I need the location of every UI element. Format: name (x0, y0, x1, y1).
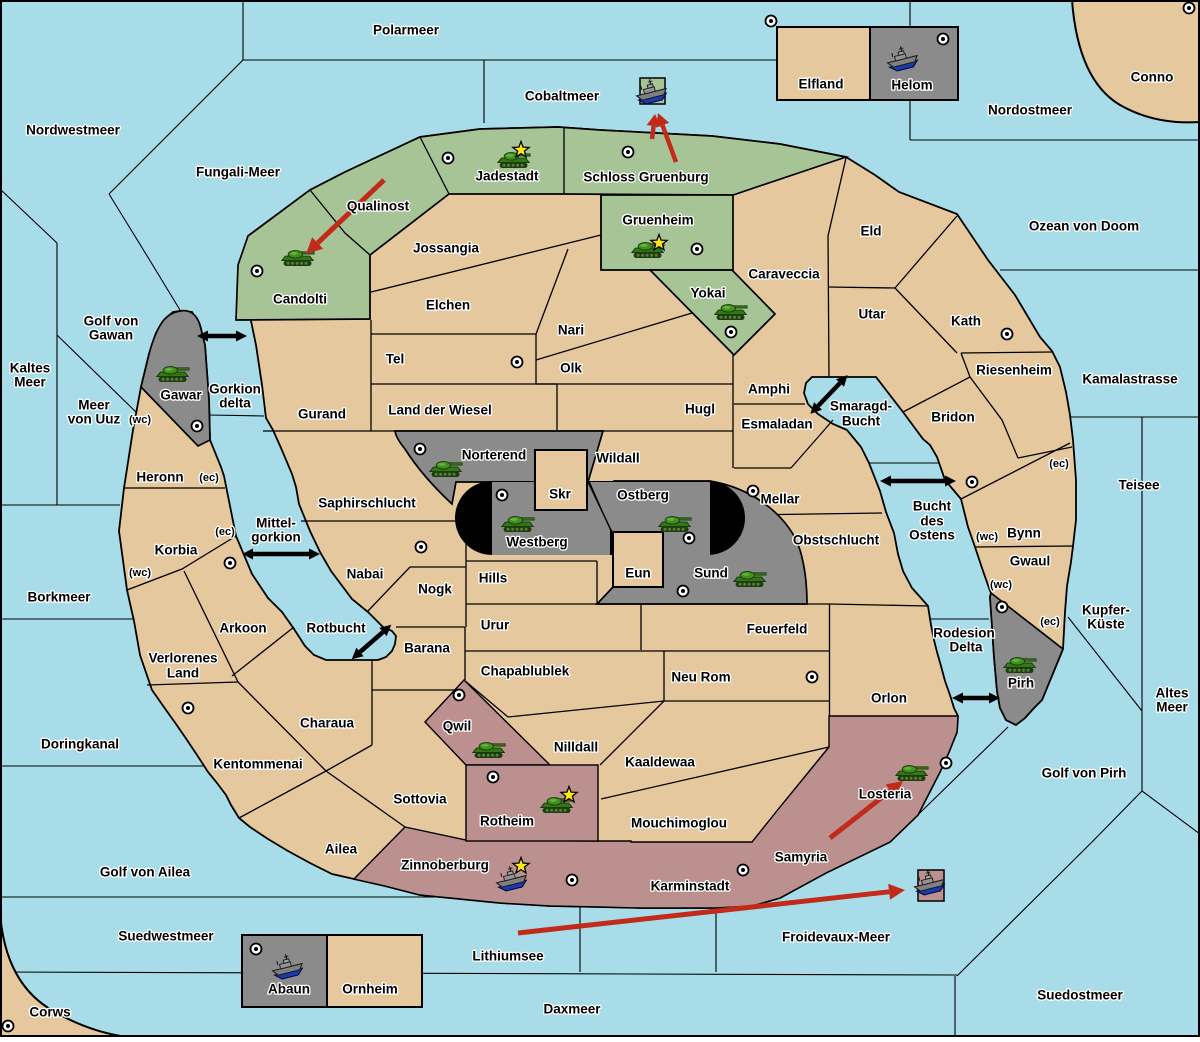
svg-text:Jossangia: Jossangia (413, 241, 480, 256)
svg-text:Saphirschlucht: Saphirschlucht (318, 496, 416, 511)
svg-text:Froidevaux-Meer: Froidevaux-Meer (782, 930, 891, 945)
svg-text:(ec): (ec) (215, 526, 235, 538)
svg-text:Teisee: Teisee (1118, 478, 1160, 493)
svg-text:(ec): (ec) (1049, 458, 1069, 470)
svg-text:Land: Land (167, 666, 199, 681)
svg-text:Gawan: Gawan (89, 328, 133, 343)
svg-text:Elchen: Elchen (426, 298, 470, 313)
svg-text:gorkion: gorkion (251, 530, 301, 545)
svg-text:Amphi: Amphi (748, 382, 790, 397)
svg-text:Qualinost: Qualinost (347, 199, 410, 214)
svg-text:Ozean von Doom: Ozean von Doom (1029, 219, 1139, 234)
svg-text:Pirh: Pirh (1008, 676, 1034, 691)
svg-text:Esmaladan: Esmaladan (741, 417, 812, 432)
svg-text:Abaun: Abaun (268, 982, 310, 997)
svg-text:Suedostmeer: Suedostmeer (1037, 988, 1123, 1003)
svg-text:Obstschlucht: Obstschlucht (793, 533, 880, 548)
svg-text:Charaua: Charaua (300, 716, 355, 731)
svg-text:Kath: Kath (951, 314, 981, 329)
svg-text:Kaltes: Kaltes (10, 361, 51, 376)
svg-text:Riesenheim: Riesenheim (976, 363, 1052, 378)
svg-text:Gawar: Gawar (160, 388, 202, 403)
svg-text:Orlon: Orlon (871, 691, 907, 706)
svg-text:Nilldall: Nilldall (554, 740, 598, 755)
svg-text:Lithiumsee: Lithiumsee (472, 949, 544, 964)
svg-text:Chapablublek: Chapablublek (481, 664, 570, 679)
svg-text:Borkmeer: Borkmeer (27, 590, 91, 605)
svg-text:Land der Wiesel: Land der Wiesel (388, 403, 491, 418)
svg-text:Samyria: Samyria (775, 850, 828, 865)
svg-text:Elfland: Elfland (798, 77, 843, 92)
svg-text:Yokai: Yokai (690, 286, 725, 301)
svg-text:Meer: Meer (1156, 700, 1188, 715)
svg-text:Hugl: Hugl (685, 402, 715, 417)
svg-text:von Uuz: von Uuz (68, 412, 121, 427)
svg-text:Kentommenai: Kentommenai (213, 757, 302, 772)
svg-text:(wc): (wc) (990, 579, 1012, 591)
svg-text:Conno: Conno (1131, 70, 1174, 85)
svg-text:Mouchimoglou: Mouchimoglou (631, 816, 727, 831)
svg-text:Rodesion: Rodesion (933, 626, 995, 641)
svg-text:Bucht: Bucht (913, 499, 952, 514)
svg-text:Rotheim: Rotheim (480, 814, 534, 829)
svg-text:Gurand: Gurand (298, 407, 346, 422)
svg-text:(wc): (wc) (129, 567, 151, 579)
svg-text:Karminstadt: Karminstadt (651, 879, 730, 894)
svg-text:Corws: Corws (29, 1005, 70, 1020)
svg-text:Barana: Barana (404, 641, 450, 656)
svg-text:Cobaltmeer: Cobaltmeer (525, 89, 600, 104)
svg-text:Smaragd-: Smaragd- (830, 399, 892, 414)
svg-text:des: des (920, 514, 943, 529)
svg-text:Eld: Eld (860, 224, 881, 239)
svg-text:Golf von Ailea: Golf von Ailea (100, 865, 191, 880)
svg-text:(wc): (wc) (976, 531, 998, 543)
svg-text:Caraveccia: Caraveccia (748, 267, 820, 282)
svg-text:Mittel-: Mittel- (256, 516, 296, 531)
svg-text:(ec): (ec) (199, 472, 219, 484)
svg-text:Olk: Olk (560, 361, 582, 376)
svg-text:Polarmeer: Polarmeer (373, 23, 440, 38)
svg-text:Norterend: Norterend (462, 448, 527, 463)
svg-text:Neu Rom: Neu Rom (671, 670, 730, 685)
svg-text:Doringkanal: Doringkanal (41, 737, 119, 752)
svg-text:Utar: Utar (858, 307, 886, 322)
svg-text:Fungali-Meer: Fungali-Meer (196, 165, 281, 180)
svg-text:Zinnoberburg: Zinnoberburg (401, 858, 489, 873)
svg-text:Arkoon: Arkoon (219, 621, 266, 636)
svg-text:Bridon: Bridon (931, 410, 975, 425)
svg-text:Nogk: Nogk (418, 582, 452, 597)
svg-text:Westberg: Westberg (506, 535, 567, 550)
svg-text:Suedwestmeer: Suedwestmeer (118, 929, 214, 944)
svg-text:Korbia: Korbia (155, 543, 198, 558)
svg-text:Kaaldewaa: Kaaldewaa (625, 755, 695, 770)
svg-text:Nari: Nari (558, 323, 584, 338)
svg-text:Gwaul: Gwaul (1010, 554, 1051, 569)
svg-text:Qwil: Qwil (443, 719, 472, 734)
svg-text:Golf von Pirh: Golf von Pirh (1042, 766, 1127, 781)
svg-text:(wc): (wc) (129, 414, 151, 426)
svg-text:Candolti: Candolti (273, 292, 327, 307)
svg-text:Meer: Meer (78, 398, 110, 413)
svg-text:Daxmeer: Daxmeer (543, 1002, 601, 1017)
svg-text:Bynn: Bynn (1007, 526, 1041, 541)
svg-text:Bucht: Bucht (842, 414, 881, 429)
svg-text:Gruenheim: Gruenheim (622, 213, 693, 228)
svg-text:Golf von: Golf von (84, 314, 139, 329)
svg-text:Eun: Eun (625, 566, 651, 581)
svg-text:Ostens: Ostens (909, 528, 955, 543)
svg-text:Gorkion: Gorkion (209, 382, 261, 397)
svg-text:Nordostmeer: Nordostmeer (988, 103, 1073, 118)
svg-text:Kupfer-: Kupfer- (1082, 603, 1130, 618)
svg-text:Heronn: Heronn (136, 470, 183, 485)
svg-text:Ailea: Ailea (325, 842, 358, 857)
svg-text:Sund: Sund (694, 566, 728, 581)
svg-text:Küste: Küste (1087, 617, 1125, 632)
svg-text:(ec): (ec) (1040, 616, 1060, 628)
svg-text:Jadestadt: Jadestadt (475, 169, 539, 184)
svg-text:Urur: Urur (481, 618, 510, 633)
svg-text:Rotbucht: Rotbucht (306, 621, 366, 636)
svg-text:Nordwestmeer: Nordwestmeer (26, 123, 121, 138)
svg-text:Mellar: Mellar (760, 492, 800, 507)
svg-text:Verlorenes: Verlorenes (148, 651, 217, 666)
svg-text:Sottovia: Sottovia (393, 792, 447, 807)
svg-text:Hills: Hills (479, 571, 508, 586)
svg-text:Helom: Helom (891, 78, 932, 93)
svg-text:Losteria: Losteria (859, 787, 912, 802)
svg-text:Skr: Skr (549, 487, 572, 502)
svg-text:Meer: Meer (14, 375, 46, 390)
svg-text:Schloss Gruenburg: Schloss Gruenburg (583, 170, 708, 185)
svg-text:Nabai: Nabai (347, 567, 384, 582)
svg-text:Tel: Tel (386, 352, 405, 367)
svg-text:Ostberg: Ostberg (617, 488, 669, 503)
svg-text:Feuerfeld: Feuerfeld (747, 622, 808, 637)
svg-text:Altes: Altes (1155, 686, 1188, 701)
svg-text:Wildall: Wildall (596, 451, 639, 466)
svg-text:delta: delta (219, 396, 251, 411)
svg-text:Kamalastrasse: Kamalastrasse (1082, 372, 1178, 387)
svg-text:Ornheim: Ornheim (342, 982, 398, 997)
svg-text:Delta: Delta (949, 640, 983, 655)
